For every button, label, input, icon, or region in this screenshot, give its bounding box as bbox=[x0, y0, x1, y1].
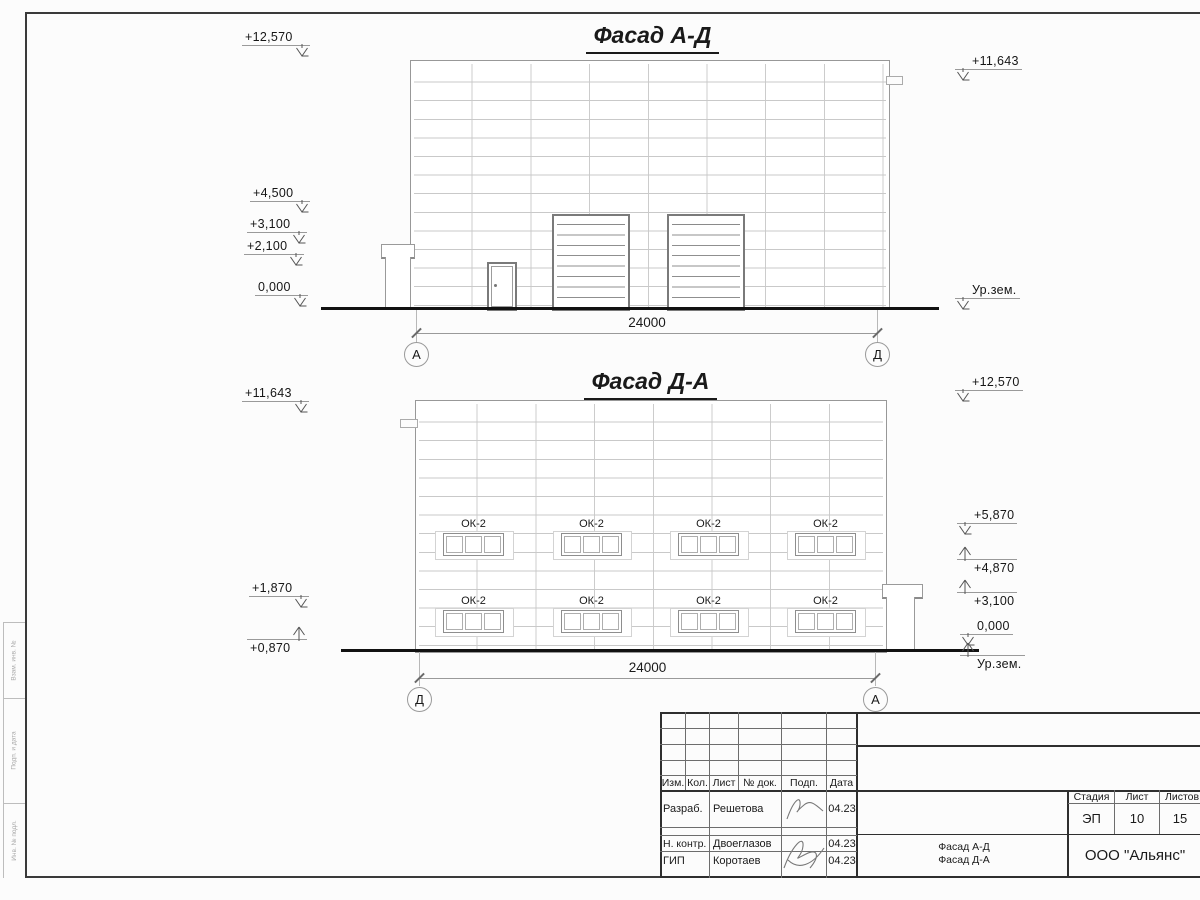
titleblock-border bbox=[660, 712, 1200, 714]
listov-value: 15 bbox=[1160, 806, 1200, 830]
signature bbox=[784, 793, 826, 825]
window-ok2 bbox=[795, 533, 856, 556]
elevation-mark: +3,100 bbox=[957, 592, 1017, 609]
col-kol: Кол. bbox=[686, 777, 709, 789]
window-label: ОК-2 bbox=[795, 518, 856, 530]
window-ok2 bbox=[443, 610, 504, 633]
porch-body bbox=[385, 257, 411, 308]
date: 04.23 bbox=[828, 837, 856, 850]
margin-label: Инв. № подл. bbox=[11, 820, 18, 861]
date: 04.23 bbox=[828, 854, 856, 867]
axis-bubble: А bbox=[863, 687, 888, 712]
panel-grid bbox=[414, 64, 886, 308]
frame-left bbox=[25, 12, 27, 878]
col-data: Дата bbox=[827, 777, 856, 789]
elevation-mark: 0,000 bbox=[255, 280, 308, 296]
company-name: ООО "Альянс" bbox=[1070, 843, 1200, 867]
facade-ad-building bbox=[410, 60, 890, 309]
ground-level-mark: Ур.зем. bbox=[955, 283, 1020, 299]
window-ok2 bbox=[561, 533, 622, 556]
titleblock-border bbox=[660, 876, 1200, 878]
drawing-sheet: Взам. инв. № Подп. и дата Инв. № подл. Ф… bbox=[0, 0, 1200, 900]
window-label: ОК-2 bbox=[795, 595, 856, 607]
col-podp: Подп. bbox=[782, 777, 826, 789]
roof-outlet bbox=[886, 76, 903, 85]
window-ok2 bbox=[795, 610, 856, 633]
elevation-mark: +5,870 bbox=[957, 508, 1017, 524]
margin-cell: Взам. инв. № bbox=[3, 622, 25, 698]
name: Решетова bbox=[713, 802, 780, 816]
listov-header: Листов bbox=[1160, 791, 1200, 802]
window-label: ОК-2 bbox=[443, 595, 504, 607]
elevation-mark: +11,643 bbox=[955, 54, 1022, 70]
margin-cell: Инв. № подл. bbox=[3, 803, 25, 877]
dimension-label: 24000 bbox=[419, 660, 876, 675]
list-header: Лист bbox=[1115, 791, 1159, 802]
entrance-door bbox=[487, 262, 517, 311]
titleblock-border bbox=[857, 745, 1200, 747]
elevation-mark: +12,570 bbox=[242, 30, 310, 46]
dimension-line bbox=[419, 678, 876, 679]
elevation-mark: +1,870 bbox=[249, 581, 309, 597]
elevation-mark: +11,643 bbox=[242, 386, 309, 402]
window-ok2 bbox=[561, 610, 622, 633]
facade-ad-title: Фасад А-Д bbox=[550, 22, 755, 54]
window-label: ОК-2 bbox=[561, 595, 622, 607]
col-doc: № док. bbox=[739, 777, 781, 789]
stage-value: ЭП bbox=[1069, 806, 1114, 830]
margin-cell: Подп. и дата bbox=[3, 698, 25, 803]
role: ГИП bbox=[663, 854, 710, 867]
stage-header: Стадия bbox=[1069, 791, 1114, 802]
window-label: ОК-2 bbox=[561, 518, 622, 530]
margin-label: Подп. и дата bbox=[11, 731, 18, 769]
elevation-mark: +4,870 bbox=[957, 559, 1017, 576]
dimension-label: 24000 bbox=[416, 315, 878, 330]
facade-da-title: Фасад Д-А bbox=[548, 368, 753, 400]
sheet-name: Фасад А-Д Фасад Д-А bbox=[870, 841, 1058, 867]
elevation-mark: +3,100 bbox=[247, 217, 307, 233]
porch-body bbox=[886, 597, 915, 651]
role: Разраб. bbox=[663, 802, 709, 816]
axis-bubble: А bbox=[404, 342, 429, 367]
date: 04.23 bbox=[828, 802, 856, 816]
window-label: ОК-2 bbox=[678, 518, 739, 530]
door-handle bbox=[494, 284, 497, 287]
col-list: Лист bbox=[710, 777, 738, 789]
margin-label: Взам. инв. № bbox=[11, 640, 18, 680]
sectional-gate bbox=[667, 214, 745, 311]
signature bbox=[780, 826, 826, 876]
list-value: 10 bbox=[1115, 806, 1159, 830]
sectional-gate bbox=[552, 214, 630, 311]
elevation-mark: +12,570 bbox=[955, 375, 1023, 391]
name: Коротаев bbox=[713, 854, 780, 867]
frame-top bbox=[25, 12, 1200, 14]
window-label: ОК-2 bbox=[443, 518, 504, 530]
axis-bubble: Д bbox=[865, 342, 890, 367]
ground-line bbox=[321, 307, 939, 310]
col-izm: Изм. bbox=[661, 777, 685, 789]
window-label: ОК-2 bbox=[678, 595, 739, 607]
elevation-mark: 0,000 bbox=[960, 619, 1013, 635]
elevation-mark: +0,870 bbox=[247, 639, 307, 656]
titleblock-border bbox=[660, 712, 662, 878]
ground-level-mark: Ур.зем. bbox=[960, 655, 1025, 672]
ground-line bbox=[341, 649, 979, 652]
dimension-line bbox=[416, 333, 878, 334]
name: Двоеглазов bbox=[713, 837, 780, 850]
window-ok2 bbox=[443, 533, 504, 556]
titleblock-border bbox=[857, 834, 1200, 835]
role: Н. контр. bbox=[663, 837, 710, 850]
window-ok2 bbox=[678, 533, 739, 556]
window-ok2 bbox=[678, 610, 739, 633]
axis-bubble: Д bbox=[407, 687, 432, 712]
elevation-mark: +4,500 bbox=[250, 186, 310, 202]
roof-outlet bbox=[400, 419, 418, 428]
elevation-mark: +2,100 bbox=[244, 239, 304, 255]
titleblock-border bbox=[856, 712, 858, 878]
